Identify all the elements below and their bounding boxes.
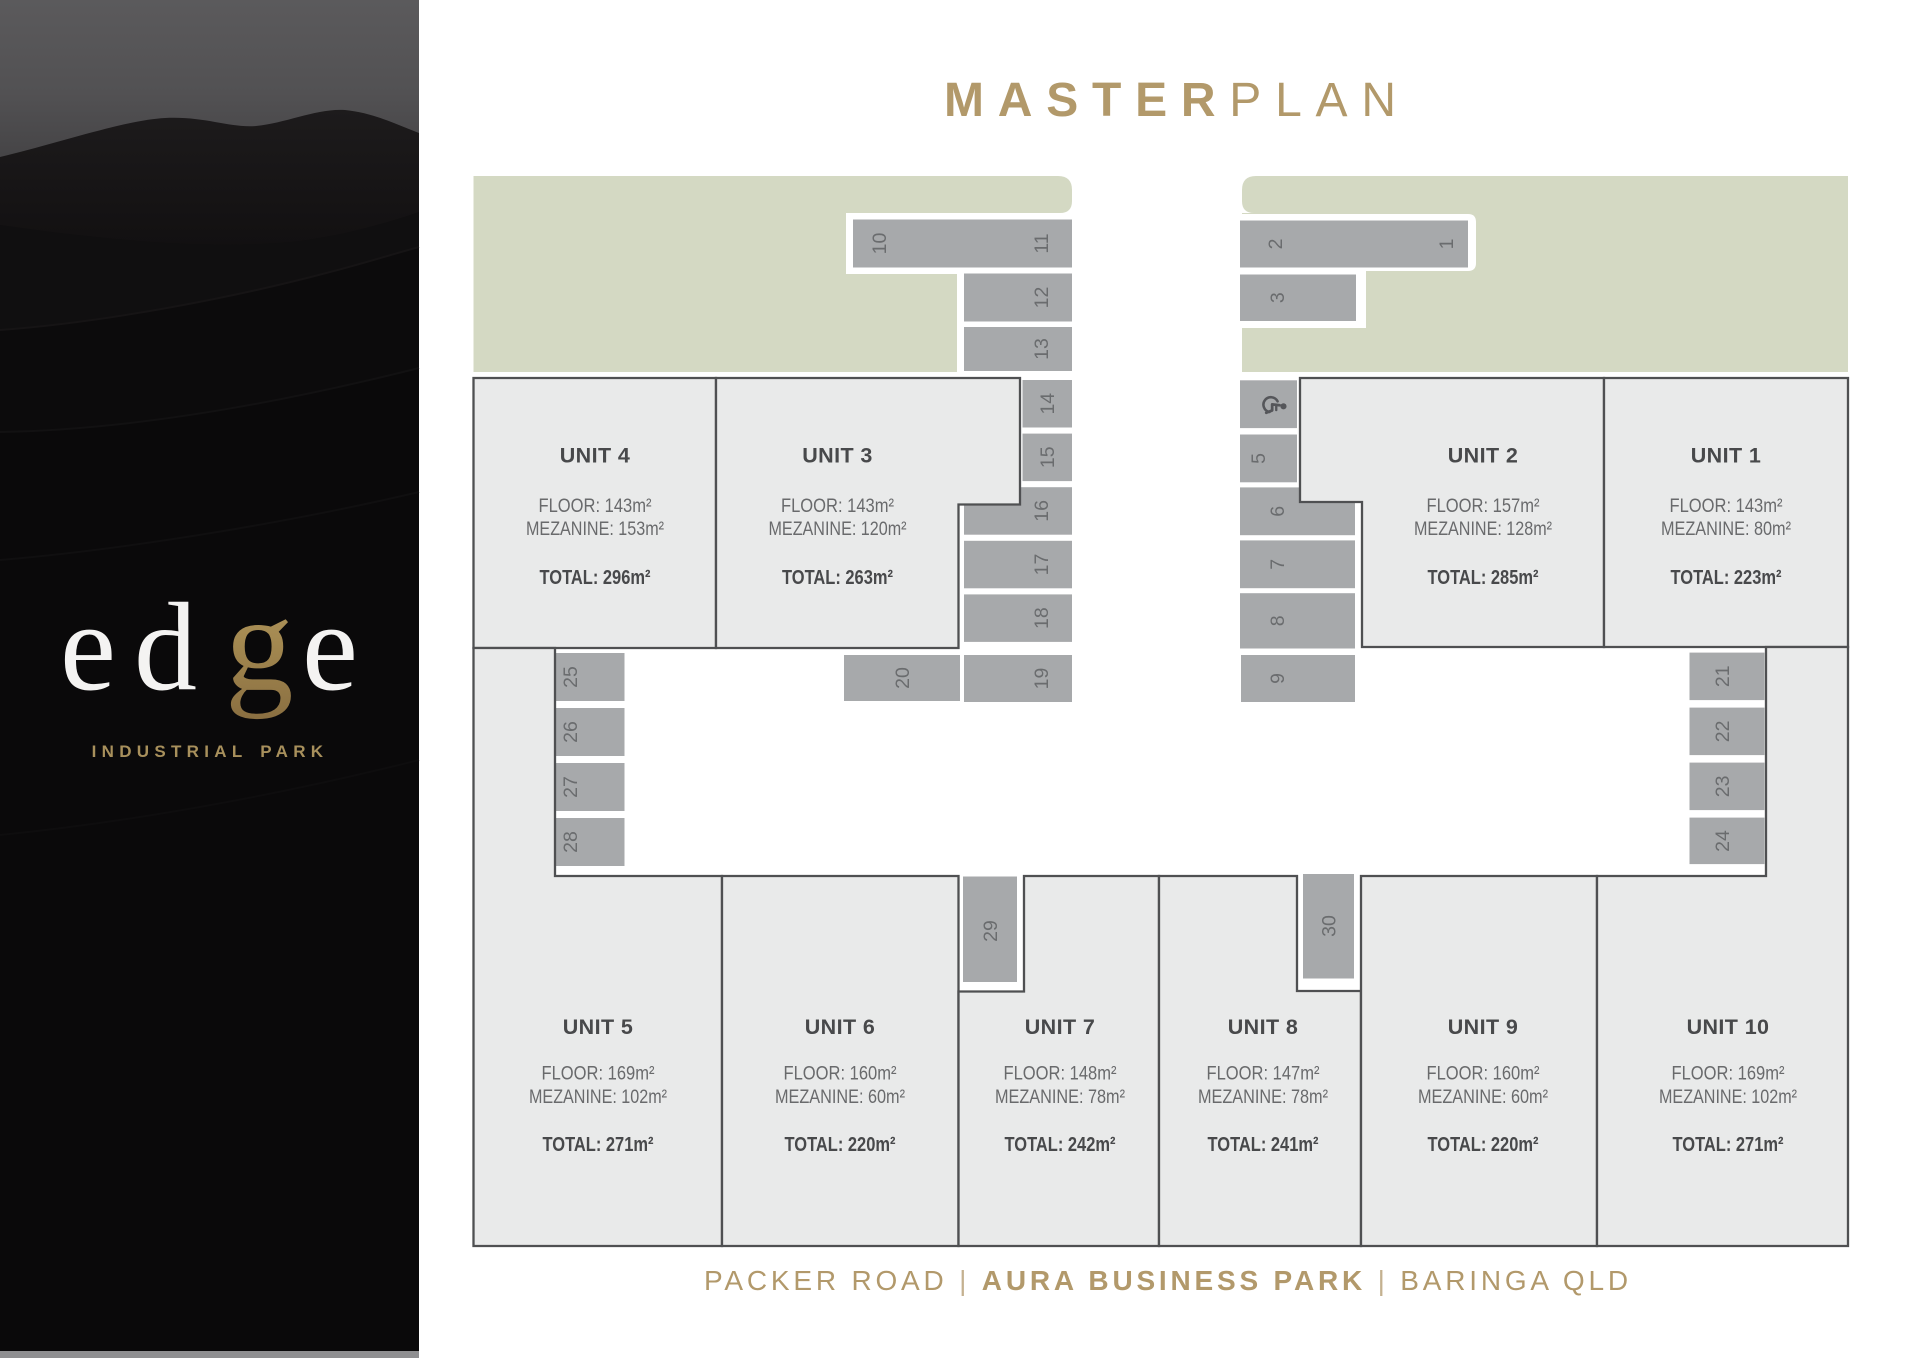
svg-text:FLOOR: 169m²: FLOOR: 169m² [542, 1063, 655, 1085]
svg-text:UNIT 8: UNIT 8 [1228, 1015, 1299, 1039]
svg-text:25: 25 [560, 666, 582, 688]
svg-text:12: 12 [1031, 287, 1053, 309]
svg-text:17: 17 [1031, 554, 1053, 576]
svg-text:5: 5 [1248, 453, 1270, 464]
svg-text:15: 15 [1037, 446, 1059, 468]
svg-text:INDUSTRIAL PARK: INDUSTRIAL PARK [92, 742, 329, 761]
svg-text:UNIT 2: UNIT 2 [1448, 444, 1519, 468]
svg-text:24: 24 [1712, 830, 1734, 852]
svg-text:UNIT 9: UNIT 9 [1448, 1015, 1519, 1039]
svg-text:13: 13 [1031, 338, 1053, 360]
svg-text:19: 19 [1031, 668, 1053, 690]
svg-text:18: 18 [1031, 607, 1053, 629]
svg-text:23: 23 [1712, 776, 1734, 798]
svg-text:20: 20 [892, 667, 914, 689]
svg-text:10: 10 [869, 233, 891, 255]
svg-text:FLOOR: 160m²: FLOOR: 160m² [784, 1063, 897, 1085]
svg-text:MEZANINE: 60m²: MEZANINE: 60m² [1418, 1086, 1548, 1108]
svg-text:27: 27 [560, 776, 582, 798]
svg-text:MEZANINE: 78m²: MEZANINE: 78m² [995, 1086, 1125, 1108]
svg-text:TOTAL: 220m²: TOTAL: 220m² [1428, 1134, 1539, 1156]
svg-text:MEZANINE: 60m²: MEZANINE: 60m² [775, 1086, 905, 1108]
svg-text:MEZANINE: 80m²: MEZANINE: 80m² [1661, 518, 1791, 540]
svg-text:MASTERPLAN: MASTERPLAN [944, 74, 1396, 127]
svg-text:TOTAL: 241m²: TOTAL: 241m² [1208, 1134, 1319, 1156]
svg-text:6: 6 [1267, 506, 1289, 517]
svg-text:3: 3 [1267, 292, 1289, 303]
svg-text:2: 2 [1265, 239, 1287, 250]
svg-text:FLOOR: 160m²: FLOOR: 160m² [1427, 1063, 1540, 1085]
svg-text:8: 8 [1267, 615, 1289, 626]
svg-text:TOTAL: 263m²: TOTAL: 263m² [782, 567, 893, 589]
svg-text:21: 21 [1712, 665, 1734, 687]
svg-text:TOTAL: 223m²: TOTAL: 223m² [1671, 567, 1782, 589]
svg-text:TOTAL: 285m²: TOTAL: 285m² [1428, 567, 1539, 589]
svg-text:FLOOR: 148m²: FLOOR: 148m² [1004, 1063, 1117, 1085]
svg-text:UNIT 4: UNIT 4 [560, 444, 631, 468]
svg-text:26: 26 [560, 721, 582, 743]
svg-text:e: e [302, 579, 358, 718]
svg-text:22: 22 [1712, 721, 1734, 743]
svg-text:g: g [225, 568, 294, 720]
svg-text:PACKER ROAD | AURA BUSINESS: PACKER ROAD | AURA BUSINESS PARK | BARIN… [704, 1265, 1632, 1296]
svg-text:14: 14 [1037, 393, 1059, 415]
svg-text:UNIT 10: UNIT 10 [1687, 1015, 1770, 1039]
svg-text:TOTAL: 271m²: TOTAL: 271m² [1673, 1134, 1784, 1156]
svg-text:29: 29 [980, 920, 1002, 942]
svg-text:16: 16 [1031, 500, 1053, 522]
svg-text:MEZANINE: 128m²: MEZANINE: 128m² [1414, 518, 1552, 540]
svg-text:MEZANINE: 102m²: MEZANINE: 102m² [529, 1086, 667, 1108]
svg-text:d: d [134, 579, 197, 718]
svg-text:UNIT 1: UNIT 1 [1691, 444, 1762, 468]
svg-text:30: 30 [1318, 915, 1340, 937]
svg-text:1: 1 [1436, 239, 1458, 250]
svg-text:UNIT 6: UNIT 6 [805, 1015, 876, 1039]
svg-text:MEZANINE: 102m²: MEZANINE: 102m² [1659, 1086, 1797, 1108]
svg-text:FLOOR: 143m²: FLOOR: 143m² [539, 495, 652, 517]
svg-text:FLOOR: 157m²: FLOOR: 157m² [1427, 495, 1540, 517]
svg-text:28: 28 [560, 831, 582, 853]
svg-text:UNIT 3: UNIT 3 [802, 444, 873, 468]
svg-text:TOTAL: 271m²: TOTAL: 271m² [543, 1134, 654, 1156]
svg-text:MEZANINE: 120m²: MEZANINE: 120m² [769, 518, 907, 540]
svg-text:MEZANINE: 78m²: MEZANINE: 78m² [1198, 1086, 1328, 1108]
svg-text:9: 9 [1267, 673, 1289, 684]
svg-text:UNIT 7: UNIT 7 [1025, 1015, 1096, 1039]
svg-text:TOTAL: 296m²: TOTAL: 296m² [540, 567, 651, 589]
svg-text:FLOOR: 169m²: FLOOR: 169m² [1672, 1063, 1785, 1085]
svg-text:e: e [60, 579, 116, 718]
svg-text:7: 7 [1267, 559, 1289, 570]
svg-text:FLOOR: 143m²: FLOOR: 143m² [1670, 495, 1783, 517]
svg-text:11: 11 [1031, 233, 1053, 253]
svg-text:UNIT 5: UNIT 5 [563, 1015, 634, 1039]
svg-text:MEZANINE: 153m²: MEZANINE: 153m² [526, 518, 664, 540]
svg-text:FLOOR: 143m²: FLOOR: 143m² [781, 495, 894, 517]
svg-text:TOTAL: 242m²: TOTAL: 242m² [1005, 1134, 1116, 1156]
svg-text:TOTAL: 220m²: TOTAL: 220m² [785, 1134, 896, 1156]
svg-text:FLOOR: 147m²: FLOOR: 147m² [1207, 1063, 1320, 1085]
